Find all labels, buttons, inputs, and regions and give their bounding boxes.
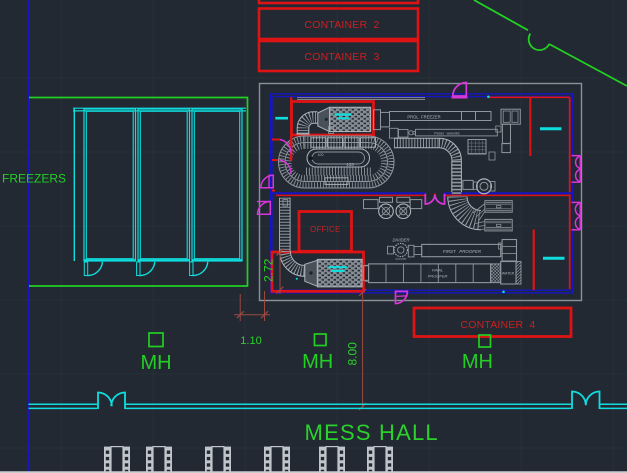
svg-text:2.72: 2.72	[262, 258, 276, 282]
svg-text:PROL FREEZER: PROL FREEZER	[407, 115, 440, 120]
svg-text:OFFICE: OFFICE	[310, 225, 340, 234]
svg-text:WATER: WATER	[502, 272, 515, 276]
svg-text:FINAL: FINAL	[432, 268, 443, 273]
svg-text:100: 100	[318, 153, 324, 157]
svg-text:MH: MH	[302, 351, 333, 373]
svg-text:133: 133	[346, 162, 354, 167]
svg-text:CONTAINER 4: CONTAINER 4	[460, 319, 535, 331]
svg-text:DIVIDER: DIVIDER	[393, 237, 410, 242]
svg-text:FREEZERS: FREEZERS	[2, 172, 66, 186]
svg-text:w/cutter: w/cutter	[395, 257, 407, 261]
svg-text:CONTAINER 2: CONTAINER 2	[304, 19, 379, 31]
svg-text:1.10: 1.10	[240, 335, 261, 347]
svg-text:FIRST PROOFER: FIRST PROOFER	[443, 249, 482, 254]
svg-text:8.00: 8.00	[346, 342, 360, 366]
svg-text:MH: MH	[462, 351, 493, 373]
svg-text:MESS HALL: MESS HALL	[305, 420, 439, 445]
svg-text:PROOFER: PROOFER	[428, 274, 448, 279]
svg-text:CONTAINER 3: CONTAINER 3	[304, 51, 379, 63]
svg-text:MH: MH	[140, 352, 171, 374]
svg-text:Panel w/works: Panel w/works	[434, 131, 459, 135]
